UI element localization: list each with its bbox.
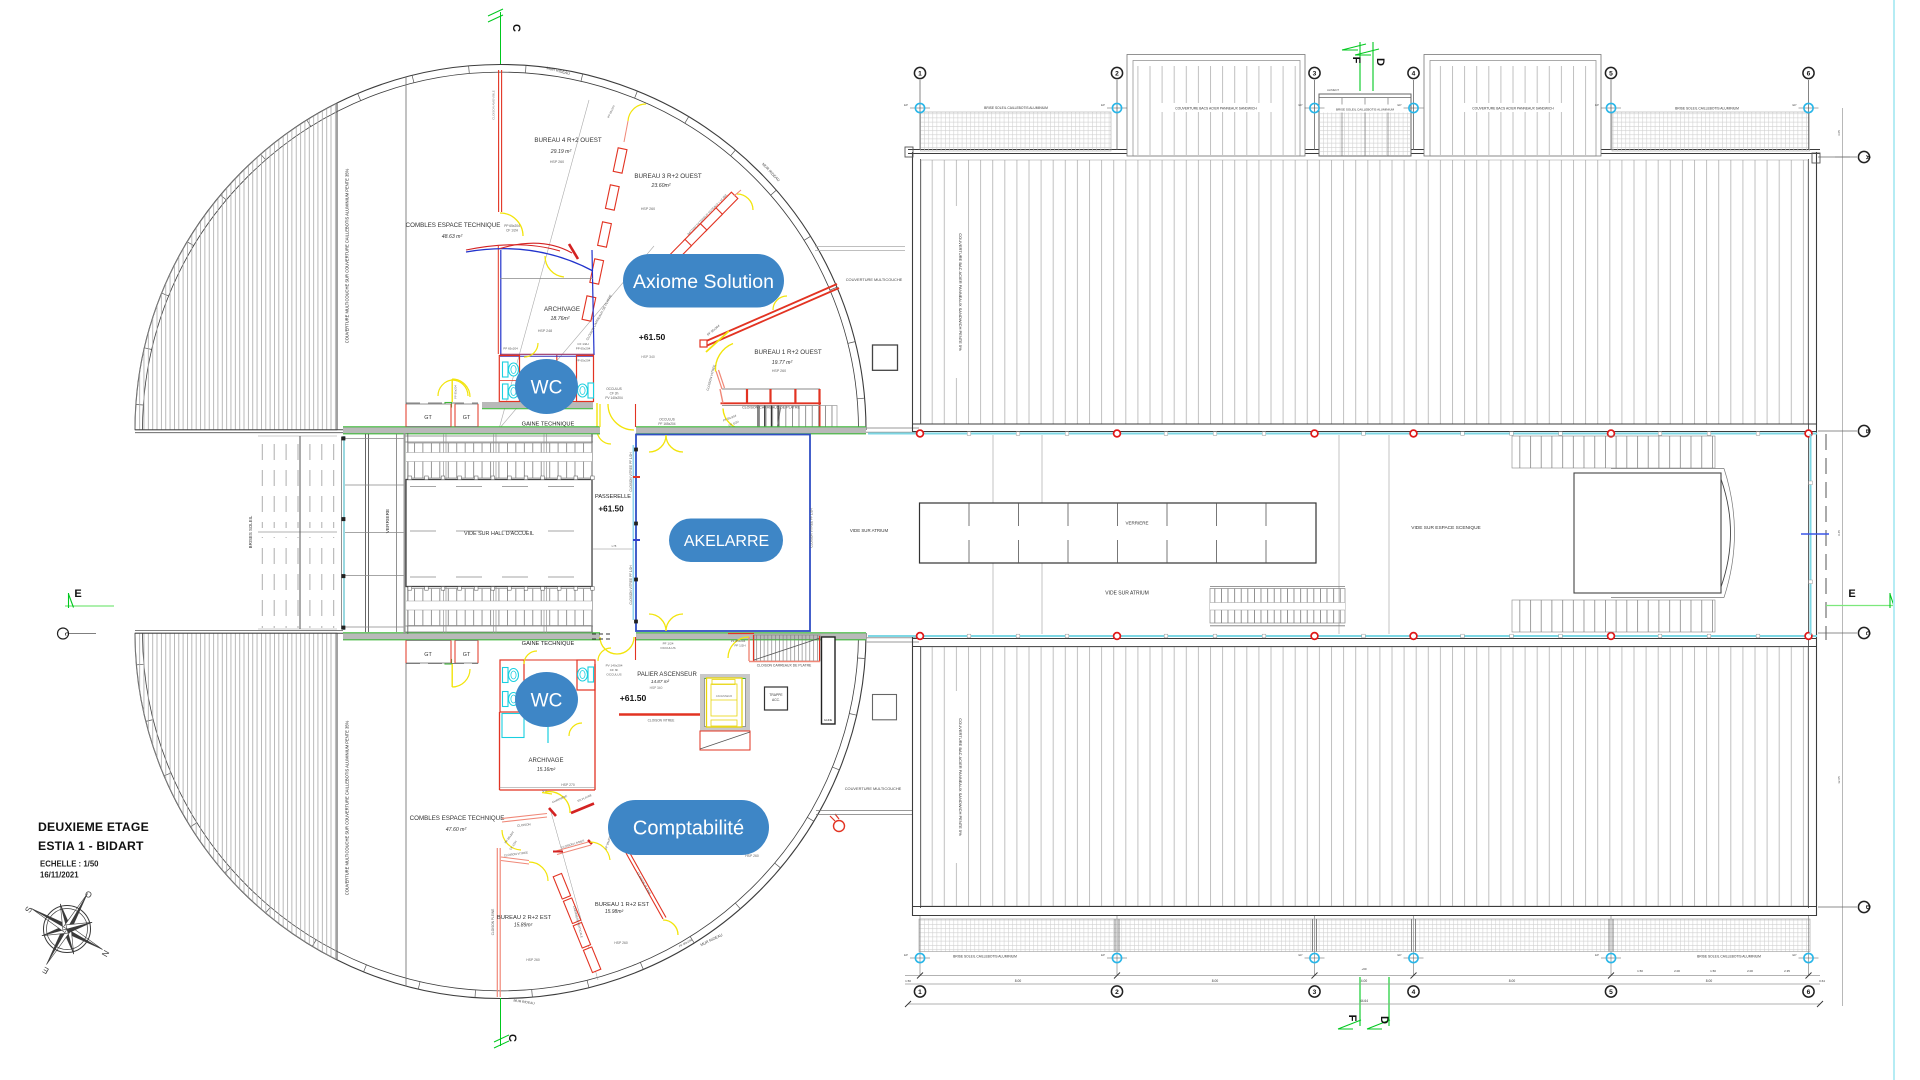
svg-text:B: B xyxy=(1864,429,1870,434)
svg-text:VERRIERE: VERRIERE xyxy=(1125,521,1148,526)
svg-text:+61.50: +61.50 xyxy=(639,332,666,342)
svg-text:OCCULUS: OCCULUS xyxy=(606,387,622,391)
svg-text:CLOISON CARREAUX DE PLATRE: CLOISON CARREAUX DE PLATRE xyxy=(757,664,812,668)
svg-text:VIDE SUR HALL D'ACCUEIL: VIDE SUR HALL D'ACCUEIL xyxy=(464,531,534,537)
svg-text:BRISE SOLEIL CAILLEBOTIS ALUMI: BRISE SOLEIL CAILLEBOTIS ALUMINIUM xyxy=(1697,955,1761,959)
svg-text:23.60m²: 23.60m² xyxy=(650,183,670,189)
svg-text:E: E xyxy=(74,588,81,600)
svg-text:ECHELLE : 1/50: ECHELLE : 1/50 xyxy=(40,860,99,869)
svg-text:COUVERTURE MULTICOUCHE: COUVERTURE MULTICOUCHE xyxy=(845,786,902,791)
svg-text:2.00: 2.00 xyxy=(1674,969,1680,973)
svg-text:CLOISON PLEINE: CLOISON PLEINE xyxy=(491,909,495,936)
svg-text:PP 65x204: PP 65x204 xyxy=(576,359,591,363)
svg-text:PV 140x204: PV 140x204 xyxy=(606,664,623,668)
svg-text:2.35: 2.35 xyxy=(1784,969,1790,973)
svg-text:2: 2 xyxy=(1115,989,1119,996)
svg-text:1.50: 1.50 xyxy=(905,979,911,983)
svg-text:OCCULUS: OCCULUS xyxy=(606,673,621,677)
svg-text:PALIER ASCENSEUR: PALIER ASCENSEUR xyxy=(637,672,697,678)
svg-text:GT: GT xyxy=(463,415,471,421)
svg-text:1.50: 1.50 xyxy=(1637,969,1643,973)
svg-text:WC: WC xyxy=(531,691,563,712)
svg-text:GT: GT xyxy=(424,415,432,421)
svg-text:CLOISON VITREE: CLOISON VITREE xyxy=(648,719,675,723)
svg-text:L78: L78 xyxy=(612,544,617,548)
svg-text:Axiome Solution: Axiome Solution xyxy=(633,271,774,293)
svg-text:EP: EP xyxy=(904,953,908,957)
svg-text:CLOISON VITREE PF 1/2H: CLOISON VITREE PF 1/2H xyxy=(810,508,814,548)
svg-text:3: 3 xyxy=(1313,70,1317,77)
svg-text:EP: EP xyxy=(904,103,908,107)
svg-text:CLOISON AMOVIBLE: CLOISON AMOVIBLE xyxy=(492,90,496,120)
svg-text:8.00: 8.00 xyxy=(1212,979,1219,983)
svg-text:1.50: 1.50 xyxy=(1710,969,1716,973)
svg-text:1: 1 xyxy=(918,989,922,996)
svg-text:EP: EP xyxy=(1397,103,1401,107)
svg-text:PASSERELLE: PASSERELLE xyxy=(595,494,631,500)
svg-text:15.89m²: 15.89m² xyxy=(514,923,533,929)
svg-text:EP: EP xyxy=(1595,103,1599,107)
svg-text:EP: EP xyxy=(1792,103,1796,107)
svg-text:AKELARRE: AKELARRE xyxy=(684,533,769,550)
svg-text:BRISES SOLEIL: BRISES SOLEIL xyxy=(248,515,253,548)
svg-text:EP: EP xyxy=(1101,953,1105,957)
svg-text:HSP 260: HSP 260 xyxy=(526,958,540,962)
svg-text:COUVERTURE BACS ACIER PANNEAUX: COUVERTURE BACS ACIER PANNEAUX SANDWICH xyxy=(1175,107,1257,111)
svg-text:HSP 260: HSP 260 xyxy=(772,369,786,373)
svg-text:F: F xyxy=(1350,57,1362,64)
svg-text:CF 3h: CF 3h xyxy=(610,392,619,396)
svg-text:VERRIERE: VERRIERE xyxy=(385,509,391,534)
svg-text:EP: EP xyxy=(1792,953,1796,957)
svg-text:5: 5 xyxy=(1609,70,1613,77)
svg-text:VIDE SUR ATRIUM: VIDE SUR ATRIUM xyxy=(850,528,889,533)
svg-text:+61.50: +61.50 xyxy=(620,693,647,703)
svg-text:CF 1/2H: CF 1/2H xyxy=(506,229,519,233)
svg-text:C: C xyxy=(1864,631,1870,636)
svg-text:4.00: 4.00 xyxy=(1361,979,1368,983)
svg-text:6: 6 xyxy=(1807,989,1811,996)
svg-text:BRISE SOLEIL CAILLEBOTIS ALUMI: BRISE SOLEIL CAILLEBOTIS ALUMINIUM xyxy=(984,106,1048,110)
svg-text:6: 6 xyxy=(1807,70,1811,77)
svg-text:BRISE SOLEIL CAILLEBOTIS ALUMI: BRISE SOLEIL CAILLEBOTIS ALUMINIUM xyxy=(953,955,1017,959)
svg-text:BUREAU 3 R+2 OUEST: BUREAU 3 R+2 OUEST xyxy=(634,173,701,180)
svg-text:PP 65x204: PP 65x204 xyxy=(503,347,518,351)
svg-text:18.76m²: 18.76m² xyxy=(550,316,569,322)
svg-text:15.16m²: 15.16m² xyxy=(537,767,556,773)
svg-text:D: D xyxy=(1864,905,1870,910)
svg-text:BRISE SOLEIL CAILLEBOTIS ALUMI: BRISE SOLEIL CAILLEBOTIS ALUMINIUM xyxy=(1675,107,1739,111)
svg-text:2.00: 2.00 xyxy=(1747,969,1753,973)
svg-text:DEUXIEME ETAGE: DEUXIEME ETAGE xyxy=(38,820,149,834)
svg-text:1: 1 xyxy=(918,70,922,77)
svg-text:BUREAU 1 R+2 OUEST: BUREAU 1 R+2 OUEST xyxy=(754,349,821,356)
svg-text:TRAPPE: TRAPPE xyxy=(769,693,783,697)
svg-text:PF 1/2H: PF 1/2H xyxy=(734,643,745,647)
svg-text:HSP 270: HSP 270 xyxy=(561,783,575,787)
svg-text:12.05: 12.05 xyxy=(1837,776,1841,784)
svg-text:OCCULUS: OCCULUS xyxy=(660,646,675,650)
svg-text:COUVERTURE MULTICOUCHE: COUVERTURE MULTICOUCHE xyxy=(846,277,903,282)
svg-text:HSP 260: HSP 260 xyxy=(641,207,655,211)
svg-text:ACC.: ACC. xyxy=(772,698,780,702)
svg-text:5: 5 xyxy=(1609,989,1613,996)
svg-text:29.19 m²: 29.19 m² xyxy=(550,149,572,155)
svg-text:CF 1/2H: CF 1/2H xyxy=(577,342,588,346)
svg-text:EP: EP xyxy=(1397,953,1401,957)
svg-text:48.63 m²: 48.63 m² xyxy=(442,234,463,240)
svg-text:GT: GT xyxy=(463,652,471,658)
svg-text:HSP 260: HSP 260 xyxy=(745,854,759,858)
svg-text:EP: EP xyxy=(1298,103,1302,107)
svg-text:0.64: 0.64 xyxy=(1819,979,1825,983)
svg-text:HSP 260: HSP 260 xyxy=(550,160,564,164)
svg-text:Comptabilité: Comptabilité xyxy=(633,818,744,840)
svg-text:CLOISON VITREE PF 1/2H: CLOISON VITREE PF 1/2H xyxy=(629,452,633,492)
svg-text:ARCHIVAGE: ARCHIVAGE xyxy=(529,758,564,764)
svg-text:BUREAU 1 R+2 EST: BUREAU 1 R+2 EST xyxy=(595,902,650,908)
svg-text:16/11/2021: 16/11/2021 xyxy=(40,871,79,880)
svg-text:EP: EP xyxy=(1595,953,1599,957)
svg-text:OCCULUS: OCCULUS xyxy=(659,418,675,422)
svg-text:PP 95x204: PP 95x204 xyxy=(454,385,458,399)
svg-text:15.98m²: 15.98m² xyxy=(605,909,624,915)
svg-text:COUVERTURE MULTICOUCHE SUR COU: COUVERTURE MULTICOUCHE SUR COUVERTURE CA… xyxy=(345,168,350,343)
svg-text:D: D xyxy=(1374,58,1386,66)
svg-text:COMBLES ESPACE TECHNIQUE: COMBLES ESPACE TECHNIQUE xyxy=(410,815,505,822)
svg-text:GAINE TECHNIQUE: GAINE TECHNIQUE xyxy=(522,641,575,647)
svg-text:14.87 m²: 14.87 m² xyxy=(651,679,670,684)
svg-text:GAINE: GAINE xyxy=(824,718,833,722)
svg-text:4: 4 xyxy=(1412,989,1416,996)
svg-text:8.00: 8.00 xyxy=(1509,979,1516,983)
svg-text:GT: GT xyxy=(424,652,432,658)
svg-text:COMBLES ESPACE TECHNIQUE: COMBLES ESPACE TECHNIQUE xyxy=(406,222,501,229)
svg-text:D: D xyxy=(1378,1016,1390,1024)
svg-text:47.60 m²: 47.60 m² xyxy=(446,827,467,833)
svg-text:C: C xyxy=(510,24,522,32)
svg-text:ARCHIVAGE: ARCHIVAGE xyxy=(544,306,580,313)
svg-text:PP 65x204: PP 65x204 xyxy=(576,347,591,351)
svg-text:HSP 340: HSP 340 xyxy=(641,355,655,359)
svg-text:3.05: 3.05 xyxy=(1837,130,1841,136)
svg-text:19.77 m²: 19.77 m² xyxy=(772,360,793,366)
svg-text:WC: WC xyxy=(531,378,563,399)
svg-text:GAINE TECHNIQUE: GAINE TECHNIQUE xyxy=(522,422,575,428)
svg-text:HSP 340: HSP 340 xyxy=(650,686,663,690)
svg-text:HSP 248: HSP 248 xyxy=(538,329,552,333)
svg-text:CF 3h: CF 3h xyxy=(610,668,619,672)
svg-text:8.00: 8.00 xyxy=(1706,979,1713,983)
svg-text:COUVERTURE BACS ACIER PANNEAUX: COUVERTURE BACS ACIER PANNEAUX SANDWICH xyxy=(1472,107,1554,111)
svg-text:+61.50: +61.50 xyxy=(598,505,624,514)
svg-text:HSP 260: HSP 260 xyxy=(614,941,628,945)
svg-text:BRISE SOLEIL CAILLEBOTIS ALUMI: BRISE SOLEIL CAILLEBOTIS ALUMINIUM xyxy=(1336,108,1394,112)
svg-text:2: 2 xyxy=(1115,70,1119,77)
svg-text:3: 3 xyxy=(1313,989,1317,996)
svg-text:PP 65x204: PP 65x204 xyxy=(504,224,520,228)
svg-text:44.64: 44.64 xyxy=(1360,999,1368,1003)
svg-text:E: E xyxy=(1848,588,1855,600)
svg-text:9.45: 9.45 xyxy=(1837,530,1841,536)
svg-text:COUVERTURE BAC ACIER PANNEA: COUVERTURE BAC ACIER PANNEAUX SANDWICH P… xyxy=(958,718,963,836)
svg-text:8.00: 8.00 xyxy=(1015,979,1022,983)
svg-text:PF 165x204: PF 165x204 xyxy=(658,422,675,426)
svg-text:ESTIA 1 - BIDART: ESTIA 1 - BIDART xyxy=(38,839,144,853)
svg-text:4: 4 xyxy=(1412,70,1416,77)
svg-text:PF 1/24: PF 1/24 xyxy=(663,642,674,646)
svg-text:VIDE SUR ESPACE SCENIQUE: VIDE SUR ESPACE SCENIQUE xyxy=(1411,525,1480,531)
svg-text:BUREAU 2 R+2 EST: BUREAU 2 R+2 EST xyxy=(497,915,552,921)
svg-text:EP: EP xyxy=(1298,953,1302,957)
svg-text:F: F xyxy=(1346,1015,1358,1022)
svg-text:C: C xyxy=(506,1034,518,1042)
svg-text:VIDE SUR ATRIUM: VIDE SUR ATRIUM xyxy=(1105,591,1149,597)
svg-text:ASCENSEUR: ASCENSEUR xyxy=(716,694,732,698)
svg-text:PV 140x204: PV 140x204 xyxy=(605,396,623,400)
svg-text:CLOISON VITREE PF 1/2H: CLOISON VITREE PF 1/2H xyxy=(629,565,633,605)
svg-text:C: C xyxy=(63,632,69,636)
svg-text:+60: +60 xyxy=(1361,967,1366,971)
svg-text:A: A xyxy=(1864,155,1870,160)
svg-text:COUVERTURE BAC ACIER PANNEA: COUVERTURE BAC ACIER PANNEAUX SANDWICH P… xyxy=(958,233,963,351)
svg-text:BUREAU 4 R+2 OUEST: BUREAU 4 R+2 OUEST xyxy=(534,137,601,144)
svg-text:ALIMENT: ALIMENT xyxy=(1327,88,1339,92)
svg-text:COUVERTURE MULTICOUCHE SUR COU: COUVERTURE MULTICOUCHE SUR COUVERTURE CA… xyxy=(345,720,350,895)
svg-text:EP: EP xyxy=(1101,103,1105,107)
